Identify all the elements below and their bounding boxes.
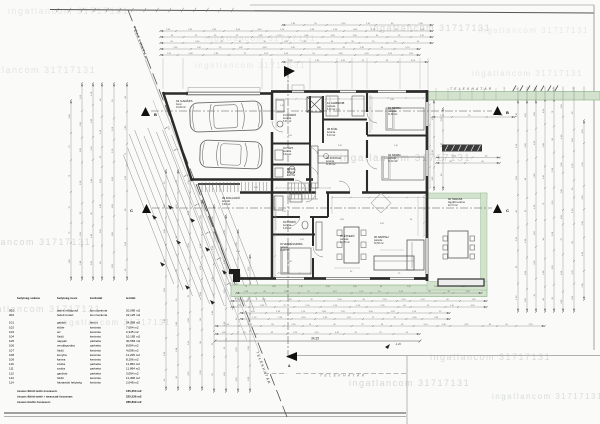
svg-text:parketta: parketta	[90, 371, 101, 375]
svg-text:parketta: parketta	[280, 246, 289, 249]
svg-text:09 WC: 09 WC	[287, 168, 295, 171]
svg-text:8,094 m2: 8,094 m2	[126, 344, 139, 348]
svg-text:TELEKHATÁR: TELEKHATÁR	[320, 374, 367, 378]
svg-text:12 GARDROB: 12 GARDROB	[327, 101, 345, 105]
svg-text:01 GARÁZS: 01 GARÁZS	[176, 99, 193, 103]
svg-text:30,583 m2: 30,583 m2	[126, 339, 141, 343]
svg-text:összes fűtött nettó összesen:: összes fűtött nettó összesen:	[17, 389, 58, 393]
svg-text:03 SZOBA: 03 SZOBA	[388, 153, 401, 157]
svg-text:34,089 m2: 34,089 m2	[126, 321, 141, 325]
svg-text:1,50: 1,50	[353, 286, 357, 288]
svg-text:beton: beton	[176, 103, 182, 106]
svg-text:11,308 m2: 11,308 m2	[126, 376, 140, 380]
svg-text:08 KÖZL: 08 KÖZL	[327, 127, 338, 131]
svg-text:parketta: parketta	[388, 157, 397, 160]
svg-text:parketta: parketta	[90, 339, 101, 343]
svg-text:101: 101	[9, 321, 14, 325]
svg-text:kerámia: kerámia	[90, 325, 101, 329]
svg-text:fedett előlépcső: fedett előlépcső	[57, 309, 78, 313]
svg-text:285,809 m2: 285,809 m2	[126, 400, 142, 404]
svg-text:parketta: parketta	[340, 238, 349, 241]
svg-text:kum kerámia: kum kerámia	[90, 313, 108, 317]
svg-text:kerámia: kerámia	[90, 381, 101, 385]
svg-text:B: B	[154, 112, 157, 117]
svg-text:fürdő: fürdő	[57, 348, 64, 352]
svg-text:helyiség száma: helyiség száma	[17, 296, 40, 300]
svg-text:103: 103	[9, 330, 14, 334]
svg-text:11,86 m2: 11,86 m2	[326, 164, 336, 166]
svg-text:ingatlancom 31717131: ingatlancom 31717131	[0, 65, 96, 75]
svg-text:fürdő: fürdő	[57, 335, 64, 339]
svg-text:kerámia: kerámia	[326, 160, 335, 163]
svg-text:2,30: 2,30	[299, 286, 303, 288]
svg-text:002: 002	[9, 313, 14, 317]
svg-text:5,46 m2: 5,46 m2	[283, 228, 292, 230]
svg-text:parketta: parketta	[388, 110, 397, 113]
svg-text:114: 114	[9, 381, 14, 385]
svg-text:15: 15	[517, 88, 519, 90]
svg-text:nappali: nappali	[57, 339, 67, 343]
svg-text:22,125 m2: 22,125 m2	[126, 313, 141, 317]
svg-text:parketta: parketta	[90, 362, 101, 366]
svg-text:kum kerámia: kum kerámia	[90, 309, 108, 313]
svg-text:11,20 m2: 11,20 m2	[280, 250, 290, 252]
svg-text:90: 90	[380, 286, 382, 288]
svg-text:104: 104	[9, 335, 14, 339]
svg-text:parketta: parketta	[374, 239, 383, 242]
svg-text:107: 107	[9, 348, 14, 352]
svg-text:112: 112	[9, 371, 14, 375]
svg-text:34,35: 34,35	[311, 337, 319, 341]
svg-text:ingatlancom 31717131: ingatlancom 31717131	[478, 26, 589, 35]
svg-text:106: 106	[9, 344, 14, 348]
svg-text:ingatlancom 31717131: ingatlancom 31717131	[0, 237, 91, 247]
svg-text:ingatlancom 31717131: ingatlancom 31717131	[349, 378, 470, 388]
svg-text:4,098 m2: 4,098 m2	[126, 348, 139, 352]
svg-text:9,08 m2: 9,08 m2	[222, 204, 231, 206]
svg-text:ingatlancom 31717131: ingatlancom 31717131	[492, 392, 600, 401]
svg-text:5,48 m2: 5,48 m2	[283, 121, 292, 123]
svg-text:102: 102	[9, 325, 14, 329]
svg-text:110: 110	[9, 362, 14, 366]
svg-text:kerámia: kerámia	[287, 171, 296, 174]
svg-text:1,20: 1,20	[573, 87, 575, 91]
svg-text:kamra: kamra	[57, 358, 66, 362]
svg-text:kerámia: kerámia	[283, 117, 292, 120]
svg-text:2,048 m2: 2,048 m2	[126, 381, 139, 385]
svg-text:10 HÁZT.: 10 HÁZT.	[283, 147, 294, 150]
svg-text:6,00 m2: 6,00 m2	[327, 109, 336, 111]
svg-text:vendégszoba: vendégszoba	[57, 344, 75, 348]
svg-text:beton: beton	[90, 321, 98, 325]
svg-text:kerámia: kerámia	[283, 224, 292, 227]
svg-text:fagyálló kerámia: fagyálló kerámia	[448, 201, 465, 204]
svg-text:garázs: garázs	[57, 321, 67, 325]
svg-text:kerámia: kerámia	[90, 353, 101, 357]
svg-text:06 KONYHA: 06 KONYHA	[326, 156, 341, 160]
svg-text:10,185 m2: 10,185 m2	[126, 335, 141, 339]
svg-text:burkolat: burkolat	[90, 296, 102, 300]
svg-text:ingatlancom 31717131: ingatlancom 31717131	[472, 69, 583, 78]
svg-text:szoba: szoba	[57, 362, 65, 366]
svg-text:1,85: 1,85	[272, 286, 276, 288]
svg-text:11,30 m2: 11,30 m2	[388, 161, 398, 163]
svg-text:20,089 m2: 20,089 m2	[126, 309, 141, 313]
svg-text:4,50: 4,50	[326, 286, 330, 288]
svg-text:34,09 m2: 34,09 m2	[176, 107, 186, 109]
svg-text:kerámia: kerámia	[90, 358, 101, 362]
svg-text:fürdő: fürdő	[57, 376, 64, 380]
svg-text:2,345 m2: 2,345 m2	[126, 330, 139, 334]
svg-text:helyiség neve: helyiség neve	[57, 296, 78, 300]
svg-text:C: C	[130, 208, 133, 213]
svg-text:06 NAPPALI: 06 NAPPALI	[374, 235, 389, 239]
svg-text:laminált: laminált	[222, 200, 230, 203]
svg-text:ingatlancom 31717131: ingatlancom 31717131	[0, 304, 101, 314]
svg-text:111: 111	[9, 367, 14, 371]
svg-text:2,68: 2,68	[434, 286, 438, 288]
svg-text:konyha: konyha	[57, 353, 67, 357]
svg-text:ingatlancom 31717131: ingatlancom 31717131	[430, 352, 551, 362]
svg-text:B: B	[506, 110, 509, 115]
svg-text:kerámia: kerámia	[90, 335, 101, 339]
svg-text:wc: wc	[57, 330, 61, 334]
svg-text:összes bruttó összesen:: összes bruttó összesen:	[17, 400, 51, 404]
svg-text:22,72 m2: 22,72 m2	[448, 205, 458, 207]
svg-text:113: 113	[9, 376, 14, 380]
svg-text:előtér: előtér	[57, 325, 65, 329]
svg-text:109: 109	[9, 358, 14, 362]
svg-text:kerámia: kerámia	[327, 131, 336, 134]
svg-text:háztartási helyiség: háztartási helyiség	[57, 381, 82, 385]
svg-text:1,10: 1,10	[535, 87, 537, 91]
svg-text:parketta: parketta	[327, 105, 336, 108]
svg-text:-1,20: -1,20	[395, 342, 401, 346]
svg-text:3,65: 3,65	[553, 87, 555, 91]
svg-text:terület: terület	[126, 296, 135, 300]
svg-text:01 SZOBA: 01 SZOBA	[388, 106, 401, 110]
svg-text:kerámia: kerámia	[90, 330, 101, 334]
svg-text:105: 105	[9, 339, 14, 343]
svg-text:108: 108	[9, 353, 14, 357]
svg-text:kerámia: kerámia	[90, 376, 101, 380]
svg-text:2,40 m2: 2,40 m2	[287, 175, 296, 177]
svg-text:8,196 m2: 8,196 m2	[126, 358, 139, 362]
svg-text:04 VENDÉGSZOBA: 04 VENDÉGSZOBA	[280, 243, 303, 246]
svg-text:7,094 m2: 7,094 m2	[126, 325, 139, 329]
svg-text:összes fűtött nettó + terassza: összes fűtött nettó + terasszal összesen…	[17, 395, 73, 399]
svg-text:11,205 m2: 11,205 m2	[126, 353, 140, 357]
svg-text:gardrob: gardrob	[57, 371, 68, 375]
svg-text:TELEKHATÁR: TELEKHATÁR	[450, 87, 493, 91]
svg-text:3,094 m2: 3,094 m2	[126, 371, 139, 375]
svg-text:75: 75	[245, 286, 247, 288]
svg-text:szoba: szoba	[57, 367, 65, 371]
svg-text:30,58 m2: 30,58 m2	[374, 243, 384, 245]
svg-text:3,40 m2: 3,40 m2	[283, 154, 292, 156]
svg-text:ingatlancom 31717131: ingatlancom 31717131	[8, 6, 129, 16]
svg-text:165,350 m2: 165,350 m2	[126, 389, 142, 393]
svg-text:parketta: parketta	[90, 367, 101, 371]
svg-text:225,536 m2: 225,536 m2	[126, 395, 142, 399]
svg-text:kerámia: kerámia	[283, 150, 292, 153]
svg-text:5,10: 5,10	[504, 87, 506, 91]
svg-text:11,864 m2: 11,864 m2	[126, 367, 140, 371]
svg-text:8,19 m2: 8,19 m2	[327, 135, 336, 137]
svg-text:parketta: parketta	[90, 344, 101, 348]
svg-text:00 TERASZ: 00 TERASZ	[448, 197, 463, 201]
svg-text:05 DOLGOZÓ: 05 DOLGOZÓ	[222, 195, 241, 200]
svg-text:14,35 m2: 14,35 m2	[340, 242, 350, 244]
svg-text:C: C	[506, 208, 509, 213]
svg-text:001: 001	[9, 309, 14, 313]
svg-text:kerámia: kerámia	[90, 348, 101, 352]
svg-text:1,20: 1,20	[407, 286, 411, 288]
svg-text:ingatlancom 31717131: ingatlancom 31717131	[60, 318, 171, 327]
svg-text:fedett terasz: fedett terasz	[57, 313, 74, 317]
svg-text:11,86 m2: 11,86 m2	[388, 114, 398, 116]
svg-text:11,863 m2: 11,863 m2	[126, 362, 140, 366]
